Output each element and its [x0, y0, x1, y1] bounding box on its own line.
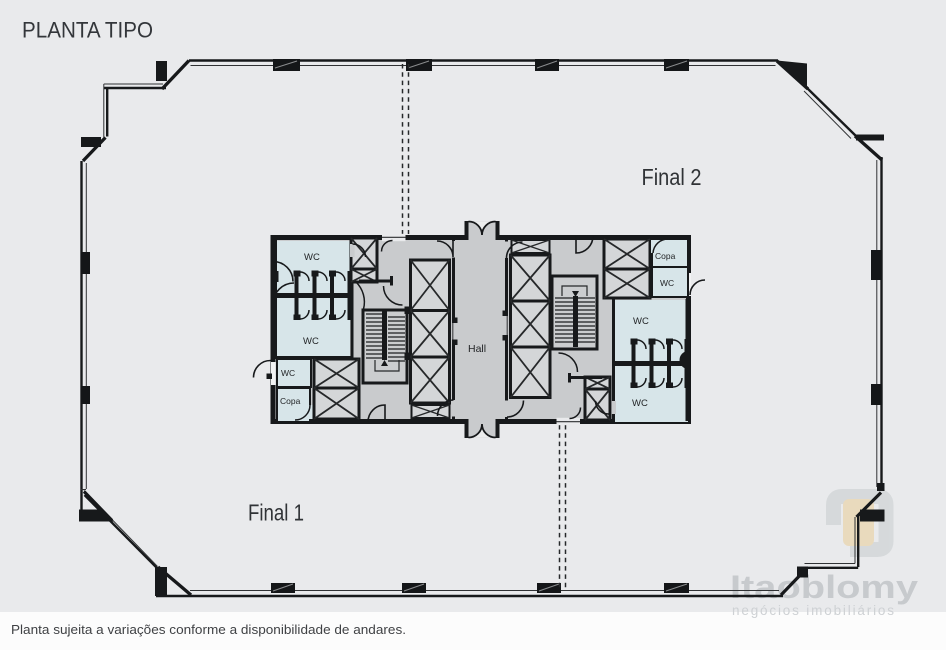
svg-text:negócios imobiliários: negócios imobiliários	[732, 603, 894, 618]
svg-text:WC: WC	[633, 316, 649, 327]
svg-text:WC: WC	[632, 398, 648, 409]
svg-text:Final 2: Final 2	[642, 164, 702, 190]
svg-text:Final 1: Final 1	[248, 500, 304, 526]
svg-text:WC: WC	[281, 368, 295, 378]
svg-text:Hall: Hall	[468, 343, 486, 355]
svg-text:WC: WC	[660, 278, 674, 288]
svg-text:Itaoblomy: Itaoblomy	[730, 568, 919, 605]
svg-text:PLANTA TIPO: PLANTA TIPO	[22, 18, 153, 43]
svg-text:Planta sujeita a variações con: Planta sujeita a variações conforme a di…	[11, 622, 406, 637]
svg-text:WC: WC	[304, 252, 320, 263]
svg-text:Copa: Copa	[655, 251, 676, 261]
svg-text:Copa: Copa	[280, 396, 301, 406]
svg-text:WC: WC	[303, 336, 319, 347]
